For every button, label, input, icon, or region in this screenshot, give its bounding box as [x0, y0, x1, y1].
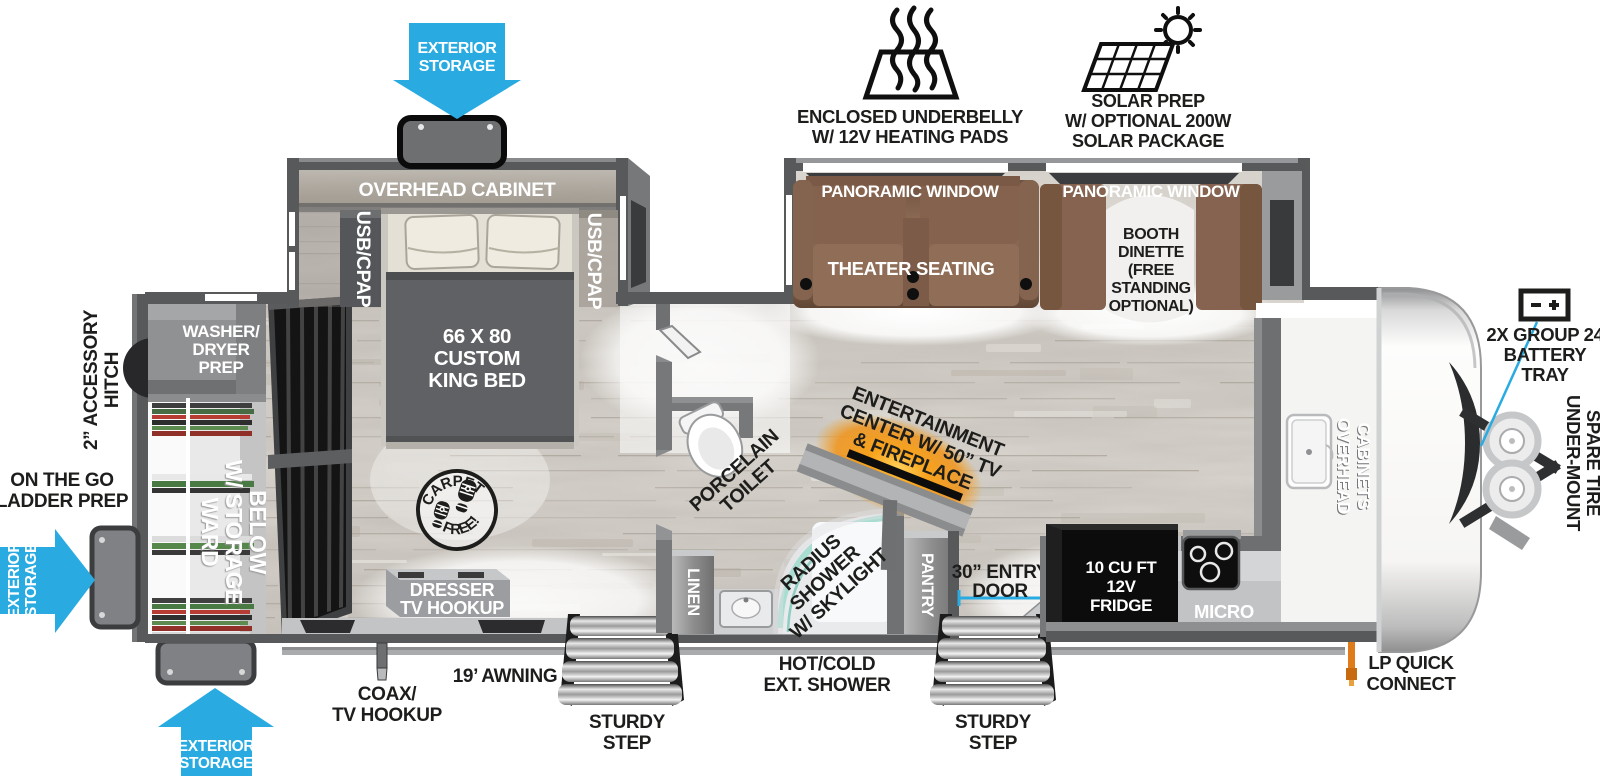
svg-text:19’ AWNING: 19’ AWNING: [453, 666, 558, 687]
svg-text:12V: 12V: [1106, 577, 1136, 596]
svg-text:DINETTE: DINETTE: [1118, 244, 1185, 261]
svg-text:W/ 12V HEATING PADS: W/ 12V HEATING PADS: [812, 126, 1008, 147]
svg-text:PANORAMIC WINDOW: PANORAMIC WINDOW: [821, 182, 1000, 201]
svg-text:TRAY: TRAY: [1521, 364, 1569, 385]
svg-text:USB/CPAP: USB/CPAP: [352, 211, 374, 308]
svg-text:STURDY: STURDY: [589, 712, 666, 733]
svg-text:EXTERIOR: EXTERIOR: [6, 542, 23, 619]
svg-text:COAX/: COAX/: [358, 684, 417, 705]
svg-text:OPTIONAL): OPTIONAL): [1109, 298, 1194, 315]
svg-text:PANORAMIC WINDOW: PANORAMIC WINDOW: [1062, 182, 1241, 201]
svg-text:STORAGE: STORAGE: [179, 755, 253, 772]
svg-text:THEATER SEATING: THEATER SEATING: [828, 258, 995, 279]
svg-text:2X GROUP 24: 2X GROUP 24: [1486, 324, 1600, 345]
svg-text:(FREE: (FREE: [1128, 262, 1175, 279]
svg-text:30” ENTRY: 30” ENTRY: [952, 562, 1049, 583]
svg-text:KING BED: KING BED: [428, 369, 525, 392]
svg-text:66 X 80: 66 X 80: [443, 325, 511, 348]
svg-text:STORAGE: STORAGE: [23, 543, 40, 617]
svg-text:ON THE GO: ON THE GO: [10, 470, 113, 491]
svg-text:W/ OPTIONAL 200W: W/ OPTIONAL 200W: [1065, 111, 1231, 131]
svg-text:WASHER/: WASHER/: [183, 322, 261, 341]
svg-text:HITCH: HITCH: [102, 352, 123, 408]
svg-text:EXTERIOR: EXTERIOR: [418, 40, 498, 57]
svg-text:DRYER: DRYER: [192, 340, 249, 359]
svg-text:PREP: PREP: [199, 358, 244, 377]
svg-text:CONNECT: CONNECT: [1366, 673, 1456, 694]
svg-text:PANTRY: PANTRY: [918, 553, 936, 617]
svg-text:STEP: STEP: [603, 733, 652, 754]
svg-text:LINEN: LINEN: [684, 568, 702, 616]
svg-text:EXT. SHOWER: EXT. SHOWER: [763, 675, 891, 696]
svg-text:LP QUICK: LP QUICK: [1368, 652, 1454, 673]
svg-text:STORAGE: STORAGE: [419, 58, 496, 75]
svg-text:UNDER-MOUNT: UNDER-MOUNT: [1563, 395, 1584, 532]
svg-text:FRIDGE: FRIDGE: [1090, 596, 1152, 615]
svg-text:TV HOOKUP: TV HOOKUP: [400, 598, 504, 618]
svg-text:STANDING: STANDING: [1111, 280, 1191, 297]
svg-text:STURDY: STURDY: [955, 712, 1032, 733]
svg-text:SOLAR PACKAGE: SOLAR PACKAGE: [1072, 131, 1224, 151]
svg-text:CABINETS: CABINETS: [1354, 423, 1374, 510]
svg-text:SOLAR PREP: SOLAR PREP: [1091, 91, 1205, 111]
svg-text:BATTERY: BATTERY: [1504, 344, 1588, 365]
svg-text:DRESSER: DRESSER: [410, 580, 495, 600]
svg-text:BOOTH: BOOTH: [1123, 226, 1179, 243]
svg-text:10 CU FT: 10 CU FT: [1086, 558, 1158, 577]
svg-text:DOOR: DOOR: [972, 581, 1028, 602]
svg-text:WARD: WARD: [197, 498, 223, 567]
svg-text:W/ STORAGE: W/ STORAGE: [221, 460, 247, 604]
svg-text:SPARE TIRE: SPARE TIRE: [1583, 410, 1600, 516]
svg-text:OVERHEAD CABINET: OVERHEAD CABINET: [359, 179, 556, 201]
svg-text:STEP: STEP: [969, 733, 1018, 754]
svg-text:MICRO: MICRO: [1194, 601, 1254, 622]
svg-text:USB/CPAP: USB/CPAP: [583, 213, 605, 310]
svg-text:CUSTOM: CUSTOM: [434, 347, 520, 370]
svg-text:BELOW: BELOW: [245, 490, 271, 574]
svg-text:OVERHEAD: OVERHEAD: [1334, 418, 1354, 514]
svg-text:LADDER PREP: LADDER PREP: [0, 491, 129, 512]
svg-text:HOT/COLD: HOT/COLD: [779, 654, 875, 675]
svg-text:2” ACCESSORY: 2” ACCESSORY: [81, 309, 102, 450]
svg-text:ENCLOSED UNDERBELLY: ENCLOSED UNDERBELLY: [797, 106, 1024, 127]
svg-text:TV HOOKUP: TV HOOKUP: [332, 705, 442, 726]
svg-text:EXTERIOR: EXTERIOR: [178, 738, 255, 755]
